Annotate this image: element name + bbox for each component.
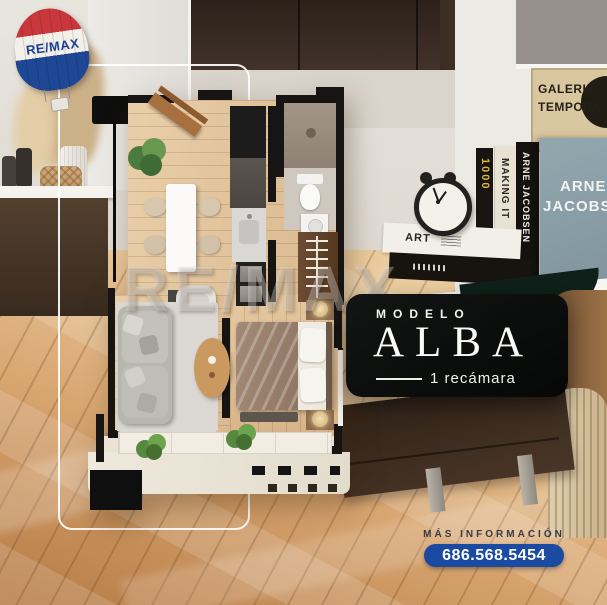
wall bbox=[198, 90, 232, 100]
wall bbox=[108, 288, 115, 438]
bed-bench bbox=[240, 412, 298, 422]
headboard bbox=[326, 322, 332, 410]
bed-duvet bbox=[236, 322, 298, 410]
advert-canvas: GALERIE TEMPORA 1000 MAKING IT ARNE JACO… bbox=[0, 0, 607, 605]
bedroom-window bbox=[338, 348, 343, 428]
potted-plant bbox=[128, 138, 168, 178]
balcony-plant bbox=[226, 424, 260, 452]
kitchen-dark-counter bbox=[230, 158, 266, 208]
paver-dots bbox=[268, 484, 344, 492]
balloon-envelope: RE/MAX bbox=[9, 4, 94, 96]
model-name: ALBA bbox=[373, 318, 534, 367]
balloon-wordmark: RE/MAX bbox=[25, 36, 80, 58]
kitchen-faucet bbox=[247, 214, 252, 219]
plant-foliage bbox=[236, 434, 252, 450]
wall bbox=[268, 106, 276, 202]
wall bbox=[96, 414, 104, 462]
badge-divider bbox=[376, 378, 422, 380]
balloon-basket bbox=[50, 97, 70, 112]
contact-label: MÁS INFORMACIÓN bbox=[412, 529, 576, 540]
bed-pillow bbox=[299, 367, 327, 402]
phone-pill[interactable]: 686.568.5454 bbox=[424, 544, 564, 567]
table-decor bbox=[209, 372, 215, 378]
model-badge: MODELO ALBA 1 recámara bbox=[346, 294, 568, 397]
plant-foliage bbox=[146, 444, 162, 460]
kitchen-tall-unit bbox=[230, 106, 266, 158]
phone-number: 686.568.5454 bbox=[442, 547, 546, 564]
coffee-table bbox=[194, 338, 230, 398]
contact-block: MÁS INFORMACIÓN 686.568.5454 bbox=[412, 529, 576, 575]
toilet-tank bbox=[297, 174, 323, 184]
table-decor bbox=[208, 356, 216, 364]
sofa-pillow bbox=[138, 334, 159, 355]
corner-block bbox=[90, 470, 142, 510]
railing-dashed bbox=[252, 466, 340, 475]
wall bbox=[284, 95, 342, 103]
balcony-plant bbox=[136, 434, 170, 462]
dining-chair bbox=[198, 198, 220, 216]
balloon-cable bbox=[68, 86, 71, 98]
nightstand-lamp bbox=[312, 411, 328, 427]
wall bbox=[276, 95, 284, 177]
kitchen-sink bbox=[239, 220, 259, 244]
remax-balloon-logo: RE/MAX bbox=[5, 3, 105, 122]
model-bedrooms: 1 recámara bbox=[430, 370, 516, 387]
bed-pillow bbox=[299, 327, 327, 362]
bed bbox=[236, 322, 332, 410]
dining-chair bbox=[144, 198, 166, 216]
balloon-cable bbox=[44, 90, 47, 102]
toilet-bowl bbox=[300, 184, 320, 210]
plant-foliage bbox=[140, 154, 162, 176]
shower-drain bbox=[306, 128, 316, 138]
